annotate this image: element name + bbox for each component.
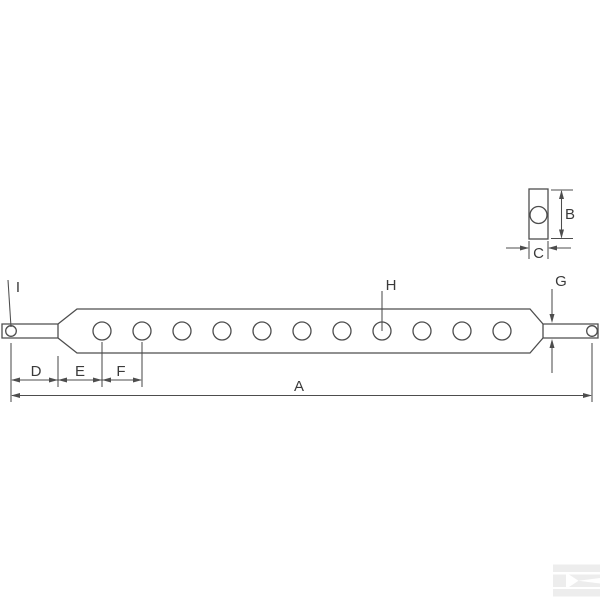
dim-b-label: B: [565, 206, 575, 223]
bar-holes: [93, 322, 511, 340]
dimension-c: C: [506, 241, 571, 262]
dim-a-label: A: [294, 378, 304, 395]
bar-hole: [293, 322, 311, 340]
kramp-k-logo-icon: [553, 565, 600, 597]
drawbar-outline: [2, 309, 598, 353]
bar-hole: [93, 322, 111, 340]
bar-hole: [133, 322, 151, 340]
dim-f-label: F: [116, 363, 125, 380]
left-end-hole: [6, 326, 17, 337]
bar-hole: [213, 322, 231, 340]
drawing-canvas: B C I H G: [0, 0, 600, 600]
bar-hole: [253, 322, 271, 340]
dim-c-label: C: [533, 245, 544, 262]
drawbar-front-view: [2, 309, 598, 353]
bar-hole: [493, 322, 511, 340]
dimension-g: G: [550, 273, 567, 373]
dimension-def: D E F: [11, 363, 142, 383]
technical-drawing: B C I H G: [0, 0, 600, 600]
leader-i: I: [8, 279, 20, 327]
dim-d-label: D: [31, 363, 42, 380]
bar-hole: [413, 322, 431, 340]
side-view-outline: [529, 189, 548, 239]
dim-e-label: E: [75, 363, 85, 380]
bar-hole: [453, 322, 471, 340]
side-view-hole: [530, 207, 547, 224]
dim-i-label: I: [16, 279, 20, 296]
dim-g-label: G: [555, 273, 567, 290]
dim-h-label: H: [386, 277, 397, 294]
side-view-plate: [529, 189, 548, 239]
bar-hole: [173, 322, 191, 340]
bar-hole: [333, 322, 351, 340]
right-end-hole: [587, 326, 598, 337]
dimension-b: B: [551, 190, 575, 239]
